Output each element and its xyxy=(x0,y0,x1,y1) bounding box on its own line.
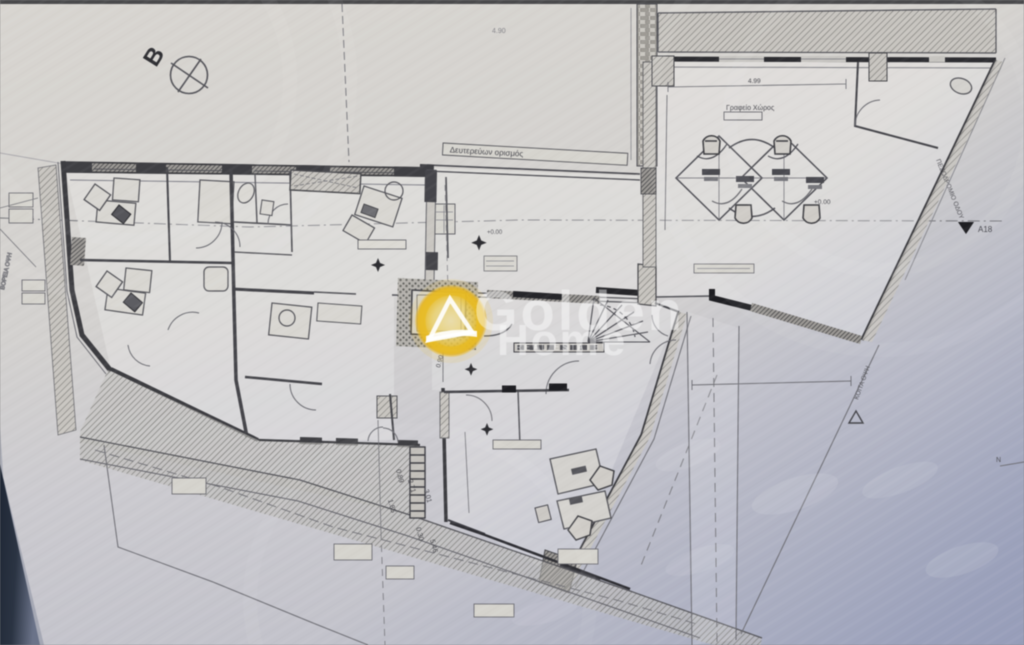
svg-text:Home: Home xyxy=(497,316,627,365)
svg-text:REAL ESTATE: REAL ESTATE xyxy=(516,343,602,352)
